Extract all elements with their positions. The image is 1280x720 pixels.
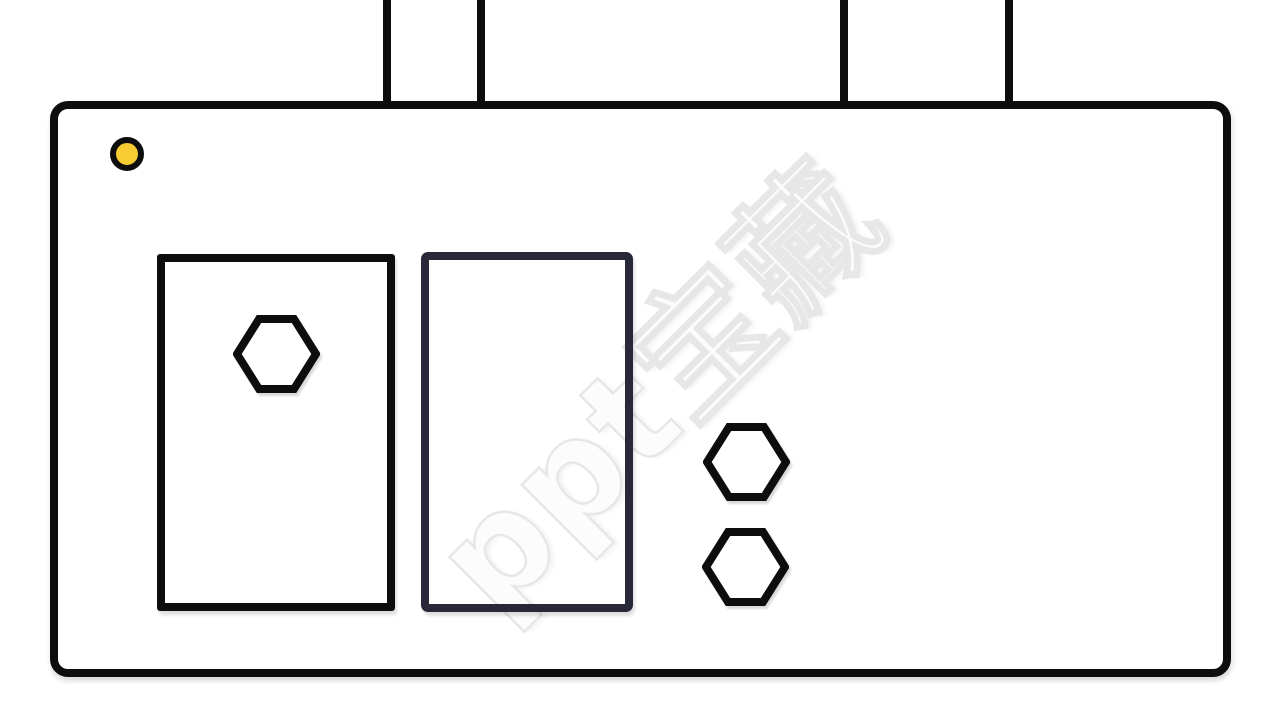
hex-bolt-icon-left-panel (233, 315, 320, 393)
top-pipe-line-2 (477, 0, 485, 107)
top-pipe-line-3 (840, 0, 848, 107)
hexagon-shape (237, 319, 316, 389)
top-pipe-line-4 (1005, 0, 1013, 107)
left-panel-outline (157, 254, 395, 611)
illustration-canvas: ppt宝藏 (0, 0, 1280, 720)
hexagon-shape (706, 532, 785, 602)
hexagon-shape (707, 427, 786, 497)
top-pipe-line-1 (383, 0, 391, 107)
hex-bolt-icon-bottom-right (702, 528, 789, 606)
indicator-light (110, 137, 144, 171)
right-panel-outline (421, 252, 633, 612)
hex-bolt-icon-top-right (703, 423, 790, 501)
